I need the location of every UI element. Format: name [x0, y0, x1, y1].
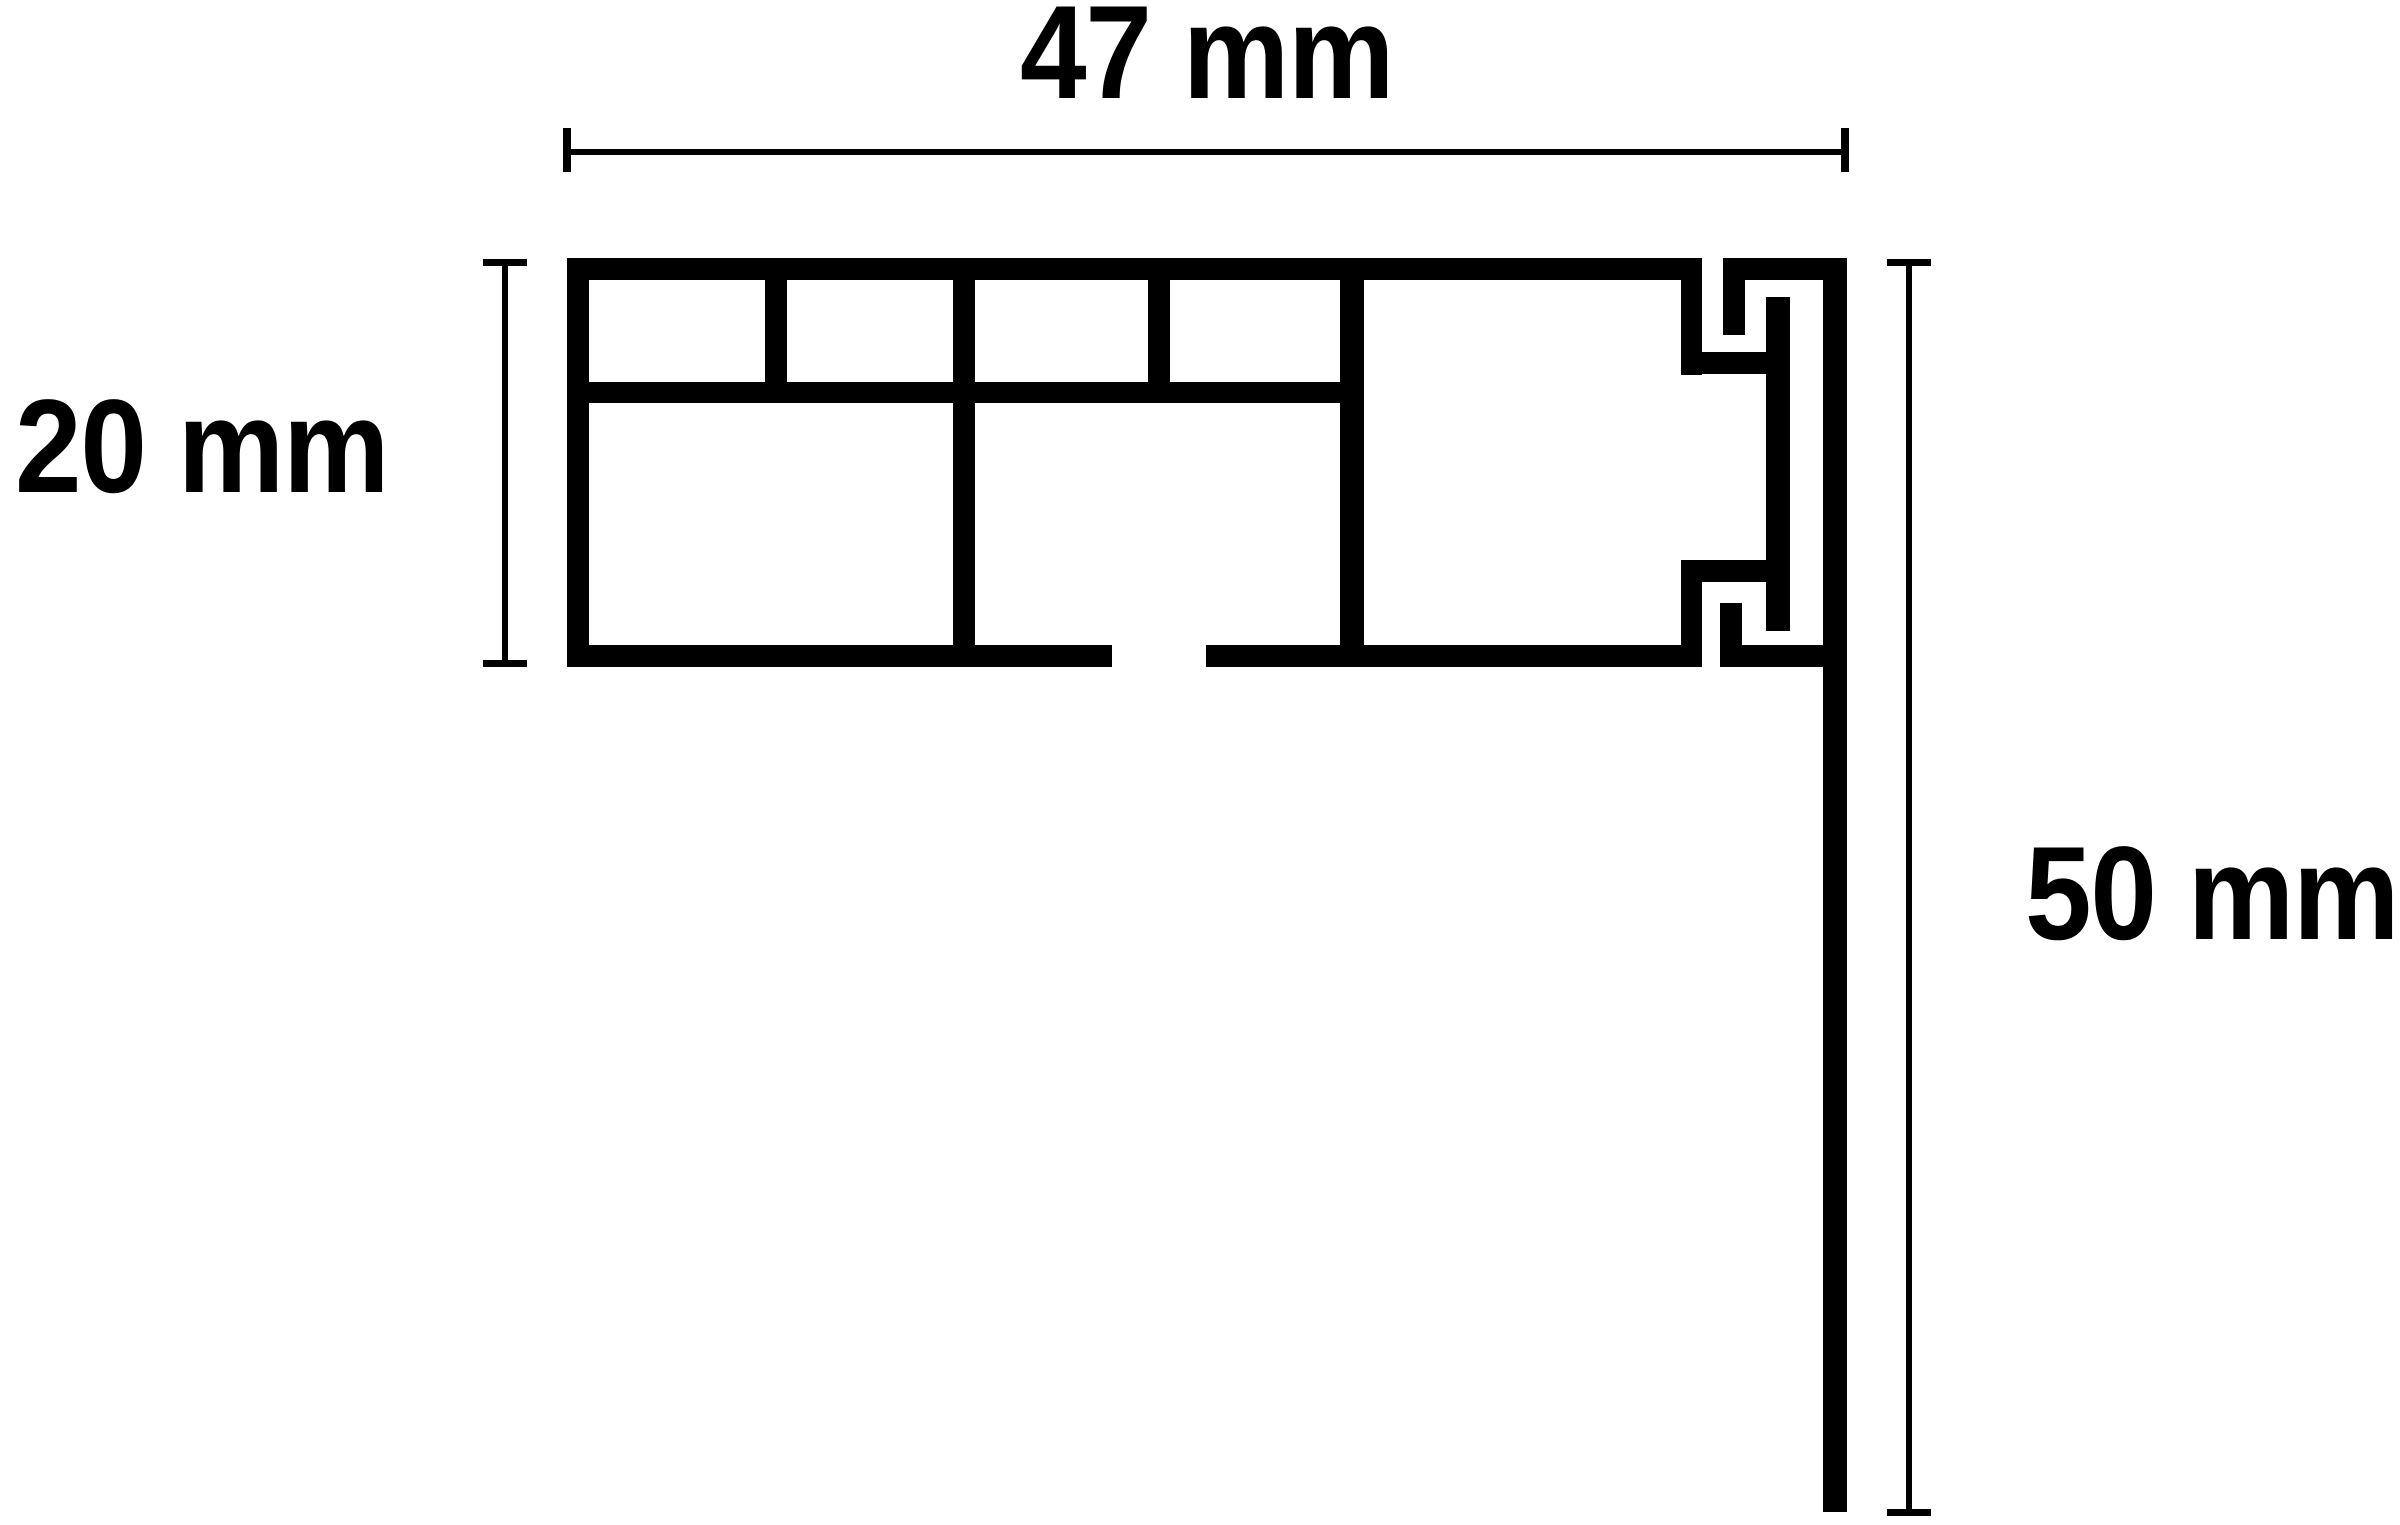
drop-strip-vertical	[1823, 258, 1847, 1512]
width-dimension-tick-right	[1841, 128, 1849, 172]
drop-dimension-tick-bottom	[1887, 1509, 1931, 1516]
diagram-canvas: 47 mm 20 mm 50 mm	[0, 0, 2400, 1525]
rail-divider-1	[765, 280, 787, 403]
rail-divider-3	[1148, 280, 1170, 403]
drop-dimension-tick-top	[1887, 259, 1931, 266]
rail-divider-2-full	[953, 280, 975, 667]
rail-divider-4-full	[1340, 280, 1364, 667]
clip-top-stub	[1723, 258, 1745, 335]
height-dimension-tick-bottom	[483, 660, 527, 667]
width-dimension	[563, 128, 1849, 172]
height-dimension-label: 20 mm	[15, 381, 375, 514]
width-dimension-line	[567, 149, 1845, 155]
width-dimension-label: 47 mm	[1020, 0, 1380, 120]
height-dimension-tick-top	[483, 259, 527, 266]
clip-bottom-stub	[1720, 603, 1742, 667]
profile-drawing	[0, 0, 2400, 1525]
rail-top-edge	[567, 258, 1702, 280]
rail-left-wall	[567, 258, 589, 667]
rail-profile	[567, 258, 1790, 667]
rail-bottom-edge-left	[567, 645, 1112, 667]
drop-dimension-line	[1906, 262, 1912, 1510]
height-dimension-line	[502, 262, 508, 664]
drop-dimension	[1887, 259, 1931, 1516]
width-dimension-tick-left	[563, 128, 571, 172]
rail-right-wall-bottom	[1681, 560, 1702, 667]
drop-dimension-label: 50 mm	[2025, 828, 2385, 961]
height-dimension	[483, 259, 527, 667]
rail-bottom-edge-right	[1206, 645, 1702, 667]
